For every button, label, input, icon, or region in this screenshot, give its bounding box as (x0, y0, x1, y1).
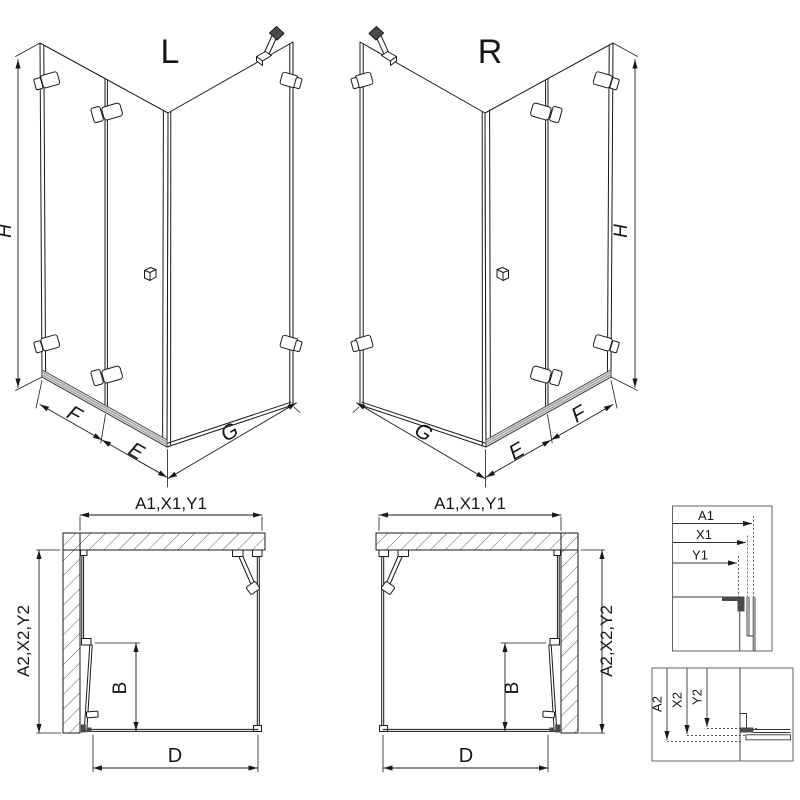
detail-width-dim-a: A1 (698, 508, 714, 523)
plan-right-dim-bottom: D (459, 745, 473, 767)
plan-right-top-wall-hatch (376, 533, 578, 550)
plan-left-dim-bottom: D (168, 745, 182, 767)
detail-depth-dim-a: A2 (650, 696, 665, 712)
plan-right-dim-door: B (502, 682, 523, 695)
door-knob-iso (145, 268, 157, 281)
iso-right-dim-f: F (568, 401, 592, 428)
iso-left-dim-e: E (124, 438, 148, 465)
iso-left-title: L (161, 33, 180, 71)
plan-left-dim-top: A1,X1,Y1 (135, 494, 207, 513)
detail-depth-dim-y: Y2 (690, 689, 705, 705)
plan-door-hinge (82, 639, 92, 646)
iso-view-left-art (16, 27, 303, 488)
iso-right-dim-e: E (505, 437, 529, 464)
detail-depth-dim-x: X2 (670, 692, 685, 708)
shower-enclosure-technical-drawing: L R H H F E G F E G A1,X1,Y1 A2,X2,Y2 B … (0, 0, 800, 800)
plan-left-top-wall-hatch (63, 533, 265, 550)
plan-right-side-wall-hatch (561, 533, 578, 733)
plan-right-dim-top: A1,X1,Y1 (434, 494, 506, 513)
detail-width-dim-y: Y1 (692, 548, 708, 563)
iso-right-dim-h: H (611, 224, 632, 238)
iso-left-dim-f: F (63, 401, 87, 428)
plan-left-side-wall-hatch (63, 533, 80, 733)
plan-door (81, 645, 98, 733)
side-glass-panel (167, 42, 293, 447)
wall-hatch-fills (63, 533, 578, 733)
iso-view-right-art (350, 27, 637, 488)
iso-left-dim-h: H (0, 224, 16, 238)
iso-right-title: R (478, 33, 503, 71)
plan-left-dim-door: B (110, 682, 131, 695)
plan-left-dim-side: A2,X2,Y2 (14, 605, 33, 677)
detail-box-width (673, 506, 773, 651)
plan-right-dim-side: A2,X2,Y2 (597, 605, 616, 677)
detail-box-depth (652, 668, 793, 761)
detail-width-dim-x: X1 (696, 527, 712, 542)
drawing-svg: L R H H F E G F E G A1,X1,Y1 A2,X2,Y2 B … (0, 0, 800, 800)
